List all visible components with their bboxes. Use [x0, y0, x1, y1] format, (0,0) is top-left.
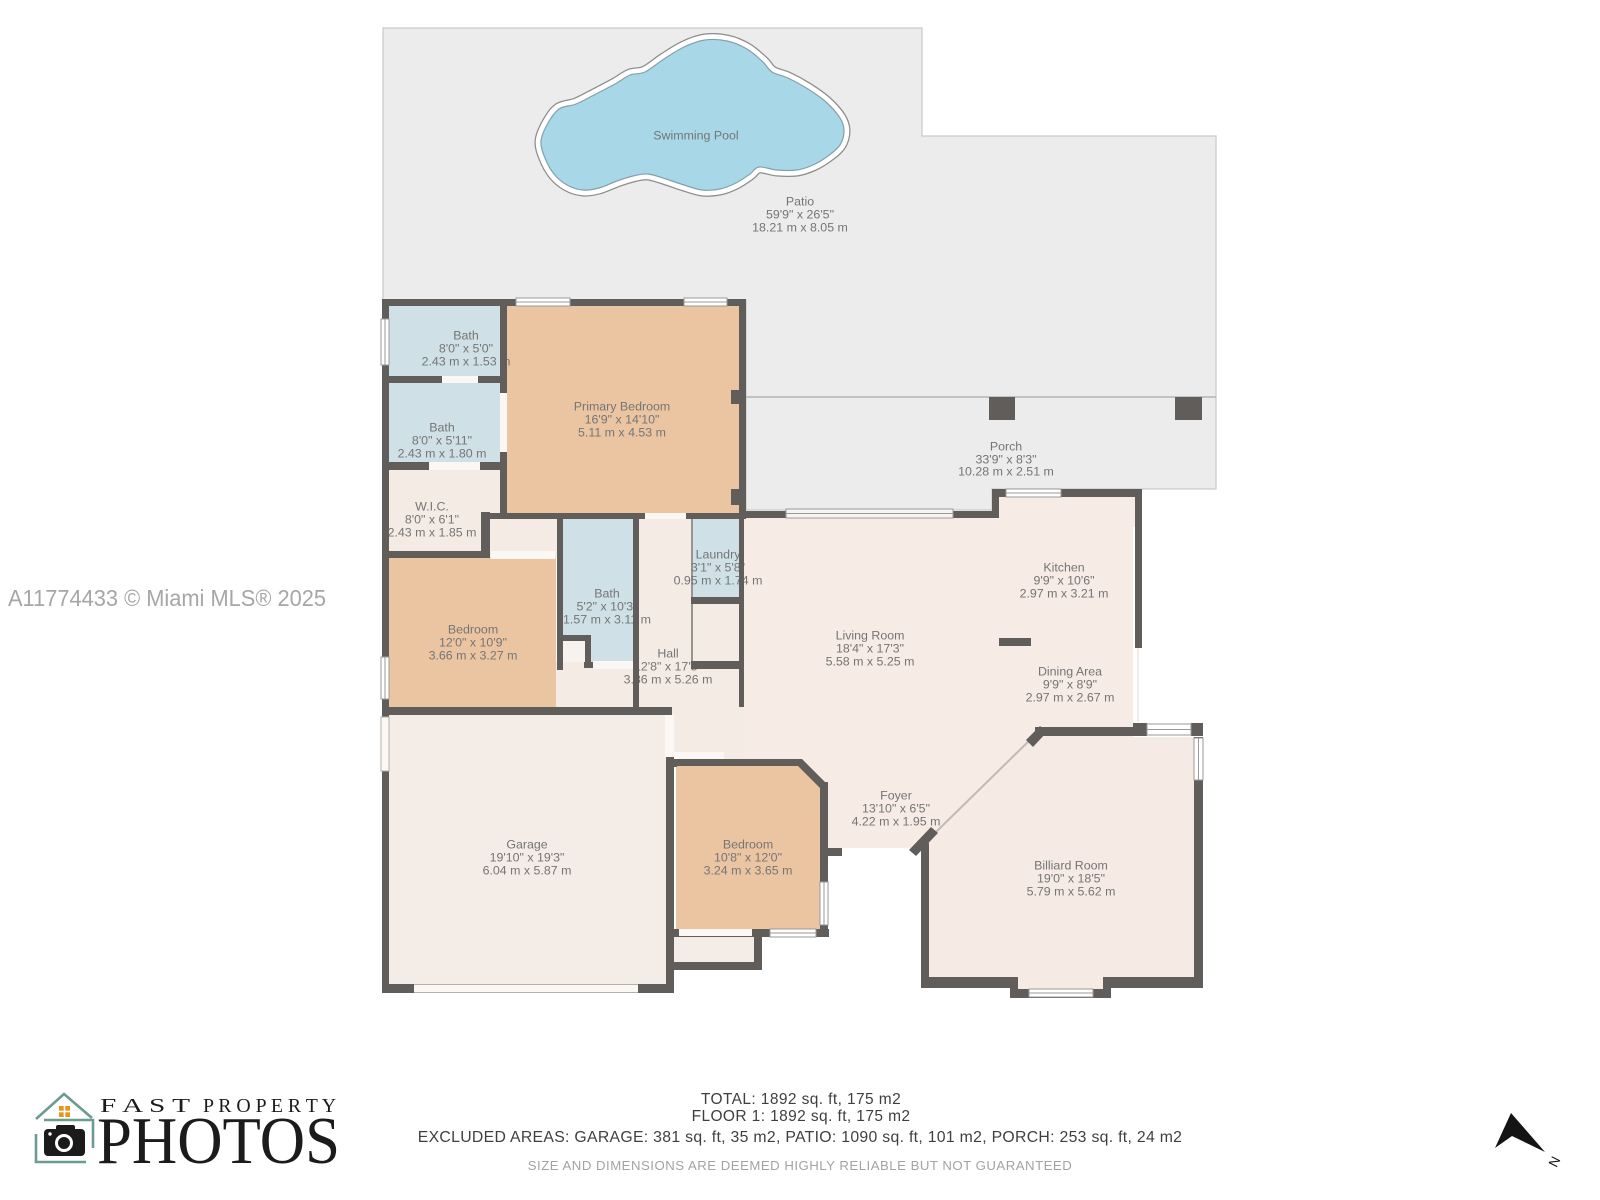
svg-text:Kitchen: Kitchen [1043, 560, 1084, 574]
svg-text:8'0" x 5'0": 8'0" x 5'0" [439, 341, 493, 355]
svg-text:Dining Area: Dining Area [1038, 664, 1102, 678]
svg-text:2.97 m x 2.67 m: 2.97 m x 2.67 m [1026, 690, 1115, 704]
svg-text:Bedroom: Bedroom [448, 622, 498, 636]
svg-text:5.58 m x 5.25 m: 5.58 m x 5.25 m [826, 654, 915, 668]
svg-text:EXCLUDED AREAS: GARAGE: 381 sq: EXCLUDED AREAS: GARAGE: 381 sq. ft, 35 m… [418, 1129, 1183, 1146]
svg-text:Porch: Porch [990, 439, 1022, 453]
svg-text:3.24 m x 3.65 m: 3.24 m x 3.65 m [704, 863, 793, 877]
svg-text:Living Room: Living Room [836, 628, 905, 642]
svg-text:8'0" x 5'11": 8'0" x 5'11" [412, 433, 472, 447]
svg-text:18.21 m x 8.05 m: 18.21 m x 8.05 m [752, 220, 848, 234]
svg-text:SIZE AND DIMENSIONS ARE DEEMED: SIZE AND DIMENSIONS ARE DEEMED HIGHLY RE… [528, 1158, 1073, 1173]
svg-text:Patio: Patio [786, 194, 814, 208]
svg-text:PHOTOS: PHOTOS [97, 1104, 340, 1178]
svg-text:18'4" x 17'3": 18'4" x 17'3" [836, 641, 904, 655]
svg-text:W.I.C.: W.I.C. [415, 499, 449, 513]
svg-text:5.11 m x 4.53 m: 5.11 m x 4.53 m [578, 425, 666, 439]
svg-text:19'0" x 18'5": 19'0" x 18'5" [1037, 871, 1105, 885]
svg-text:Bath: Bath [429, 420, 455, 434]
svg-text:13'10" x 6'5": 13'10" x 6'5" [862, 801, 930, 815]
svg-text:Primary Bedroom: Primary Bedroom [574, 399, 670, 413]
svg-text:19'10" x 19'3": 19'10" x 19'3" [490, 850, 565, 864]
svg-text:2.43 m x 1.80 m: 2.43 m x 1.80 m [398, 446, 487, 460]
svg-text:6.04 m x 5.87 m: 6.04 m x 5.87 m [483, 863, 572, 877]
svg-text:8'0" x 6'1": 8'0" x 6'1" [405, 512, 459, 526]
svg-text:Garage: Garage [506, 837, 547, 851]
svg-text:Swimming Pool: Swimming Pool [653, 128, 738, 142]
svg-text:Hall: Hall [657, 646, 678, 660]
svg-text:Billiard Room: Billiard Room [1034, 858, 1108, 872]
svg-text:12'0" x 10'9": 12'0" x 10'9" [439, 635, 507, 649]
svg-text:2.43 m x 1.53 m: 2.43 m x 1.53 m [422, 354, 511, 368]
svg-text:5.79 m x 5.62 m: 5.79 m x 5.62 m [1027, 884, 1116, 898]
svg-text:0.95 m x 1.74 m: 0.95 m x 1.74 m [674, 573, 763, 587]
svg-text:10'8" x 12'0": 10'8" x 12'0" [714, 850, 782, 864]
svg-text:Bath: Bath [453, 328, 479, 342]
svg-text:FLOOR 1: 1892 sq. ft, 175 m2: FLOOR 1: 1892 sq. ft, 175 m2 [692, 1108, 911, 1125]
svg-text:Foyer: Foyer [880, 788, 912, 802]
svg-text:10.28 m x 2.51 m: 10.28 m x 2.51 m [958, 464, 1054, 478]
svg-text:3.66 m x 3.27 m: 3.66 m x 3.27 m [429, 648, 518, 662]
svg-text:16'9" x 14'10": 16'9" x 14'10" [585, 412, 660, 426]
svg-text:Laundry: Laundry [696, 547, 742, 561]
svg-text:4.22 m x 1.95 m: 4.22 m x 1.95 m [852, 814, 941, 828]
svg-text:Bedroom: Bedroom [723, 837, 773, 851]
svg-text:2.97 m x 3.21 m: 2.97 m x 3.21 m [1020, 586, 1109, 600]
svg-text:59'9" x 26'5": 59'9" x 26'5" [766, 207, 834, 221]
svg-text:9'9" x 8'9": 9'9" x 8'9" [1043, 677, 1097, 691]
svg-text:A11774433 © Miami MLS® 2025: A11774433 © Miami MLS® 2025 [8, 585, 326, 611]
svg-text:9'9" x 10'6": 9'9" x 10'6" [1033, 573, 1094, 587]
svg-text:Bath: Bath [594, 586, 620, 600]
svg-text:5'2" x 10'3": 5'2" x 10'3" [576, 599, 637, 613]
svg-text:TOTAL: 1892 sq. ft, 175 m2: TOTAL: 1892 sq. ft, 175 m2 [701, 1091, 901, 1108]
svg-text:2.43 m x 1.85 m: 2.43 m x 1.85 m [388, 525, 477, 539]
svg-text:3'1" x 5'8": 3'1" x 5'8" [691, 560, 745, 574]
